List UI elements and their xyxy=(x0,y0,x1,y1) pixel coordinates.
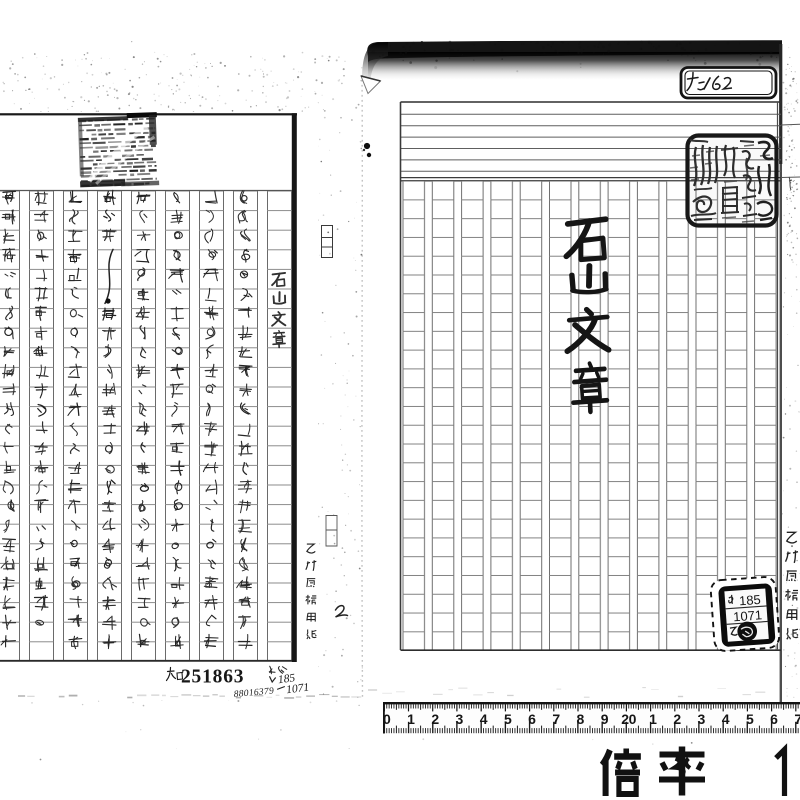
svg-text:8: 8 xyxy=(577,711,585,727)
svg-text:5: 5 xyxy=(746,711,754,727)
svg-text:9: 9 xyxy=(601,711,609,727)
svg-text:20: 20 xyxy=(621,711,636,727)
svg-text:3: 3 xyxy=(456,711,464,727)
svg-text:6: 6 xyxy=(770,711,778,727)
svg-text:6: 6 xyxy=(528,711,536,727)
svg-text:1: 1 xyxy=(407,711,415,727)
svg-text:2: 2 xyxy=(673,711,681,727)
svg-text:4: 4 xyxy=(722,711,730,727)
svg-text:2: 2 xyxy=(431,711,439,727)
svg-text:0: 0 xyxy=(383,711,391,727)
svg-text:1: 1 xyxy=(649,711,657,727)
svg-text:5: 5 xyxy=(504,711,512,727)
svg-text:7: 7 xyxy=(552,711,560,727)
svg-text:251863: 251863 xyxy=(181,667,244,688)
svg-text:7: 7 xyxy=(794,711,800,727)
svg-text:185: 185 xyxy=(739,592,762,608)
svg-text:3: 3 xyxy=(698,711,706,727)
svg-text:4: 4 xyxy=(480,711,488,727)
